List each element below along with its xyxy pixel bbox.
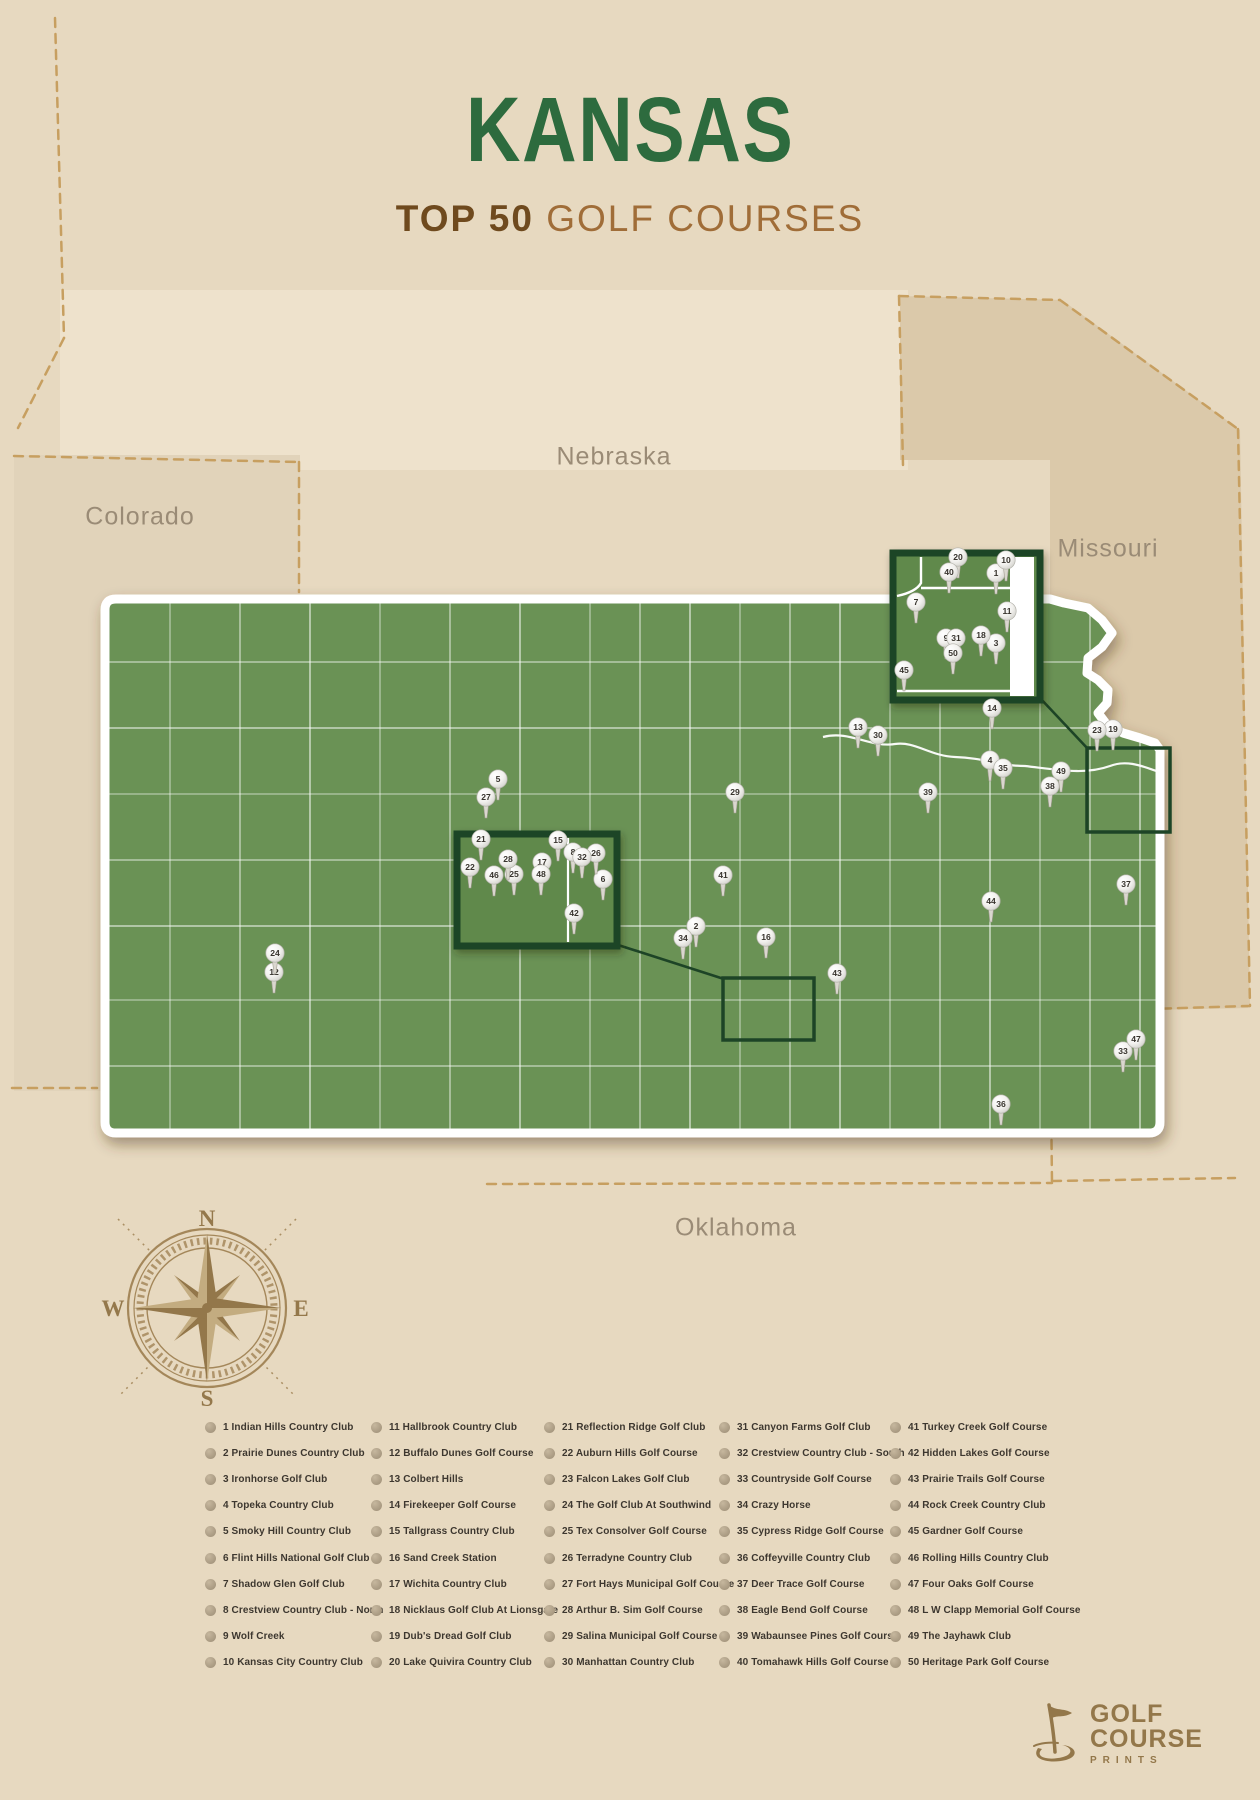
legend-item-label: 20 Lake Quivira Country Club <box>389 1657 532 1668</box>
svg-text:45: 45 <box>899 665 909 675</box>
golf-ball-bullet-icon <box>205 1526 216 1537</box>
legend-item: 26 Terradyne Country Club <box>544 1545 714 1571</box>
legend-column-1: 1 Indian Hills Country Club2 Prairie Dun… <box>205 1414 375 1676</box>
legend-item-label: 12 Buffalo Dunes Golf Course <box>389 1448 533 1459</box>
legend-item-label: 33 Countryside Golf Course <box>737 1474 872 1485</box>
legend-item-label: 16 Sand Creek Station <box>389 1553 497 1564</box>
compass-w-label: W <box>102 1296 125 1321</box>
logo-line-course: COURSE <box>1090 1727 1203 1752</box>
legend-item-label: 42 Hidden Lakes Golf Course <box>908 1448 1050 1459</box>
golf-ball-bullet-icon <box>371 1500 382 1511</box>
golf-ball-bullet-icon <box>205 1500 216 1511</box>
golf-ball-bullet-icon <box>371 1631 382 1642</box>
svg-text:43: 43 <box>832 968 842 978</box>
legend-column-5: 41 Turkey Creek Golf Course42 Hidden Lak… <box>890 1414 1060 1676</box>
legend-column-3: 21 Reflection Ridge Golf Club22 Auburn H… <box>544 1414 714 1676</box>
golf-ball-bullet-icon <box>205 1605 216 1616</box>
legend-item-label: 34 Crazy Horse <box>737 1500 811 1511</box>
legend-item-label: 2 Prairie Dunes Country Club <box>223 1448 365 1459</box>
compass-s-label: S <box>201 1386 214 1411</box>
svg-text:19: 19 <box>1108 724 1118 734</box>
legend-item-label: 18 Nicklaus Golf Club At Lionsgate <box>389 1605 558 1616</box>
svg-text:37: 37 <box>1121 879 1131 889</box>
legend-item-label: 29 Salina Municipal Golf Course <box>562 1631 717 1642</box>
legend-item-label: 25 Tex Consolver Golf Course <box>562 1526 707 1537</box>
legend-item-label: 1 Indian Hills Country Club <box>223 1422 353 1433</box>
svg-text:20: 20 <box>953 552 963 562</box>
svg-text:36: 36 <box>996 1099 1006 1109</box>
legend-item: 15 Tallgrass Country Club <box>371 1519 541 1545</box>
legend-item: 24 The Golf Club At Southwind <box>544 1493 714 1519</box>
golf-ball-bullet-icon <box>719 1579 730 1590</box>
legend-item: 27 Fort Hays Municipal Golf Course <box>544 1571 714 1597</box>
state-label-colorado: Colorado <box>85 503 194 532</box>
legend-item: 13 Colbert Hills <box>371 1466 541 1492</box>
svg-text:46: 46 <box>489 870 499 880</box>
legend-item-label: 49 The Jayhawk Club <box>908 1631 1011 1642</box>
legend-item: 19 Dub's Dread Golf Club <box>371 1624 541 1650</box>
state-label-nebraska: Nebraska <box>557 443 672 472</box>
golf-ball-bullet-icon <box>544 1474 555 1485</box>
golf-ball-bullet-icon <box>890 1631 901 1642</box>
golf-ball-bullet-icon <box>890 1422 901 1433</box>
golf-ball-bullet-icon <box>205 1422 216 1433</box>
golf-ball-bullet-icon <box>205 1657 216 1668</box>
legend-item-label: 43 Prairie Trails Golf Course <box>908 1474 1045 1485</box>
svg-text:38: 38 <box>1045 781 1055 791</box>
compass-e-label: E <box>293 1296 308 1321</box>
legend-item-label: 24 The Golf Club At Southwind <box>562 1500 711 1511</box>
legend-item-label: 14 Firekeeper Golf Course <box>389 1500 516 1511</box>
golf-ball-bullet-icon <box>719 1631 730 1642</box>
legend-item-label: 9 Wolf Creek <box>223 1631 285 1642</box>
golf-ball-bullet-icon <box>205 1474 216 1485</box>
legend-item-label: 5 Smoky Hill Country Club <box>223 1526 351 1537</box>
kansas-city-inset <box>893 553 1040 700</box>
golf-ball-bullet-icon <box>890 1474 901 1485</box>
golf-ball-bullet-icon <box>719 1605 730 1616</box>
legend-item: 1 Indian Hills Country Club <box>205 1414 375 1440</box>
golf-ball-bullet-icon <box>371 1422 382 1433</box>
legend-item: 8 Crestview Country Club - North <box>205 1597 375 1623</box>
golf-ball-bullet-icon <box>890 1500 901 1511</box>
legend-item-label: 23 Falcon Lakes Golf Club <box>562 1474 690 1485</box>
legend-item-label: 50 Heritage Park Golf Course <box>908 1657 1049 1668</box>
legend-item: 50 Heritage Park Golf Course <box>890 1650 1060 1676</box>
legend-item: 39 Wabaunsee Pines Golf Course <box>719 1624 889 1650</box>
legend-item-label: 4 Topeka Country Club <box>223 1500 334 1511</box>
legend-item-label: 38 Eagle Bend Golf Course <box>737 1605 868 1616</box>
title-kansas: KANSAS <box>466 84 794 176</box>
golf-ball-bullet-icon <box>371 1526 382 1537</box>
golf-flag-icon <box>1028 1702 1086 1768</box>
legend-item-label: 36 Coffeyville Country Club <box>737 1553 870 1564</box>
golf-ball-bullet-icon <box>890 1553 901 1564</box>
legend-item: 22 Auburn Hills Golf Course <box>544 1440 714 1466</box>
golf-ball-bullet-icon <box>544 1500 555 1511</box>
golf-ball-bullet-icon <box>890 1579 901 1590</box>
svg-text:39: 39 <box>923 787 933 797</box>
golf-ball-bullet-icon <box>371 1474 382 1485</box>
legend-item-label: 40 Tomahawk Hills Golf Course <box>737 1657 889 1668</box>
golf-ball-bullet-icon <box>719 1474 730 1485</box>
legend-item-label: 30 Manhattan Country Club <box>562 1657 695 1668</box>
svg-text:50: 50 <box>948 648 958 658</box>
state-label-oklahoma: Oklahoma <box>675 1214 797 1243</box>
legend-item: 35 Cypress Ridge Golf Course <box>719 1519 889 1545</box>
legend-item: 18 Nicklaus Golf Club At Lionsgate <box>371 1597 541 1623</box>
legend-item: 34 Crazy Horse <box>719 1493 889 1519</box>
legend-item: 45 Gardner Golf Course <box>890 1519 1060 1545</box>
golf-ball-bullet-icon <box>544 1553 555 1564</box>
svg-text:4: 4 <box>988 755 993 765</box>
svg-text:6: 6 <box>601 874 606 884</box>
legend-item: 44 Rock Creek Country Club <box>890 1493 1060 1519</box>
compass-n-label: N <box>199 1206 216 1231</box>
svg-text:15: 15 <box>553 835 563 845</box>
legend-item: 47 Four Oaks Golf Course <box>890 1571 1060 1597</box>
svg-text:40: 40 <box>944 567 954 577</box>
svg-text:47: 47 <box>1131 1034 1141 1044</box>
legend-item: 33 Countryside Golf Course <box>719 1466 889 1492</box>
legend-item-label: 6 Flint Hills National Golf Club <box>223 1553 370 1564</box>
svg-text:13: 13 <box>853 722 863 732</box>
legend-item: 32 Crestview Country Club - South <box>719 1440 889 1466</box>
golf-ball-bullet-icon <box>371 1448 382 1459</box>
svg-text:49: 49 <box>1056 766 1066 776</box>
svg-text:29: 29 <box>730 787 740 797</box>
golf-ball-bullet-icon <box>371 1657 382 1668</box>
legend-item: 43 Prairie Trails Golf Course <box>890 1466 1060 1492</box>
legend-item: 36 Coffeyville Country Club <box>719 1545 889 1571</box>
legend-item: 17 Wichita Country Club <box>371 1571 541 1597</box>
legend-item-label: 37 Deer Trace Golf Course <box>737 1579 865 1590</box>
svg-text:41: 41 <box>718 870 728 880</box>
legend-item-label: 21 Reflection Ridge Golf Club <box>562 1422 705 1433</box>
svg-text:24: 24 <box>270 948 280 958</box>
legend-item: 20 Lake Quivira Country Club <box>371 1650 541 1676</box>
legend-item: 2 Prairie Dunes Country Club <box>205 1440 375 1466</box>
page-subtitle: TOP 50 GOLF COURSES <box>0 200 1260 237</box>
svg-text:35: 35 <box>998 763 1008 773</box>
svg-text:5: 5 <box>496 774 501 784</box>
golf-ball-bullet-icon <box>371 1579 382 1590</box>
legend-item: 40 Tomahawk Hills Golf Course <box>719 1650 889 1676</box>
golf-ball-bullet-icon <box>371 1553 382 1564</box>
golf-ball-bullet-icon <box>205 1579 216 1590</box>
legend-item: 7 Shadow Glen Golf Club <box>205 1571 375 1597</box>
golf-ball-bullet-icon <box>890 1526 901 1537</box>
legend-column-4: 31 Canyon Farms Golf Club32 Crestview Co… <box>719 1414 889 1676</box>
golf-ball-bullet-icon <box>719 1553 730 1564</box>
subtitle-golf-courses: GOLF COURSES <box>534 198 864 239</box>
legend-item-label: 41 Turkey Creek Golf Course <box>908 1422 1047 1433</box>
legend-item-label: 46 Rolling Hills Country Club <box>908 1553 1049 1564</box>
svg-text:10: 10 <box>1001 555 1011 565</box>
svg-text:34: 34 <box>678 933 688 943</box>
svg-text:11: 11 <box>1002 606 1011 616</box>
legend-item: 29 Salina Municipal Golf Course <box>544 1624 714 1650</box>
legend-item: 4 Topeka Country Club <box>205 1493 375 1519</box>
legend-item: 21 Reflection Ridge Golf Club <box>544 1414 714 1440</box>
golf-ball-bullet-icon <box>205 1553 216 1564</box>
legend-item-label: 28 Arthur B. Sim Golf Course <box>562 1605 703 1616</box>
legend-item: 9 Wolf Creek <box>205 1624 375 1650</box>
golf-ball-bullet-icon <box>544 1605 555 1616</box>
legend-item: 14 Firekeeper Golf Course <box>371 1493 541 1519</box>
legend-item-label: 44 Rock Creek Country Club <box>908 1500 1046 1511</box>
brand-logo: GOLF COURSE PRINTS <box>1028 1702 1238 1768</box>
legend-item-label: 39 Wabaunsee Pines Golf Course <box>737 1631 899 1642</box>
svg-text:22: 22 <box>465 862 475 872</box>
legend-item: 11 Hallbrook Country Club <box>371 1414 541 1440</box>
legend-item: 25 Tex Consolver Golf Course <box>544 1519 714 1545</box>
legend-item-label: 27 Fort Hays Municipal Golf Course <box>562 1579 734 1590</box>
legend-item-label: 19 Dub's Dread Golf Club <box>389 1631 512 1642</box>
legend-item-label: 8 Crestview Country Club - North <box>223 1605 383 1616</box>
legend-item-label: 31 Canyon Farms Golf Club <box>737 1422 871 1433</box>
golf-ball-bullet-icon <box>719 1526 730 1537</box>
legend-item: 38 Eagle Bend Golf Course <box>719 1597 889 1623</box>
legend-item: 30 Manhattan Country Club <box>544 1650 714 1676</box>
legend-item-label: 45 Gardner Golf Course <box>908 1526 1023 1537</box>
svg-text:14: 14 <box>987 703 997 713</box>
legend-item-label: 22 Auburn Hills Golf Course <box>562 1448 698 1459</box>
legend-item: 6 Flint Hills National Golf Club <box>205 1545 375 1571</box>
compass-rose: N E S W <box>102 1206 309 1411</box>
legend-column-2: 11 Hallbrook Country Club12 Buffalo Dune… <box>371 1414 541 1676</box>
golf-ball-bullet-icon <box>544 1526 555 1537</box>
golf-ball-bullet-icon <box>544 1579 555 1590</box>
legend-item: 49 The Jayhawk Club <box>890 1624 1060 1650</box>
svg-text:27: 27 <box>481 792 491 802</box>
svg-text:21: 21 <box>476 834 486 844</box>
svg-text:30: 30 <box>873 730 883 740</box>
legend-item: 16 Sand Creek Station <box>371 1545 541 1571</box>
legend-item: 46 Rolling Hills Country Club <box>890 1545 1060 1571</box>
legend-item: 3 Ironhorse Golf Club <box>205 1466 375 1492</box>
subtitle-top50: TOP 50 <box>396 198 534 239</box>
legend-item-label: 3 Ironhorse Golf Club <box>223 1474 327 1485</box>
golf-ball-bullet-icon <box>890 1657 901 1668</box>
legend-item-label: 10 Kansas City Country Club <box>223 1657 363 1668</box>
legend-item-label: 7 Shadow Glen Golf Club <box>223 1579 345 1590</box>
svg-text:32: 32 <box>577 852 587 862</box>
legend-item: 48 L W Clapp Memorial Golf Course <box>890 1597 1060 1623</box>
golf-ball-bullet-icon <box>890 1448 901 1459</box>
svg-text:44: 44 <box>986 896 996 906</box>
legend-item: 23 Falcon Lakes Golf Club <box>544 1466 714 1492</box>
golf-ball-bullet-icon <box>719 1448 730 1459</box>
legend-item-label: 13 Colbert Hills <box>389 1474 463 1485</box>
legend-item-label: 48 L W Clapp Memorial Golf Course <box>908 1605 1081 1616</box>
golf-ball-bullet-icon <box>719 1657 730 1668</box>
golf-ball-bullet-icon <box>371 1605 382 1616</box>
svg-text:28: 28 <box>503 854 513 864</box>
golf-ball-bullet-icon <box>544 1422 555 1433</box>
svg-text:3: 3 <box>994 638 999 648</box>
svg-text:7: 7 <box>914 597 919 607</box>
logo-line-prints: PRINTS <box>1090 1756 1203 1766</box>
svg-text:18: 18 <box>976 630 986 640</box>
svg-text:26: 26 <box>591 848 601 858</box>
svg-text:25: 25 <box>509 869 519 879</box>
legend-item: 31 Canyon Farms Golf Club <box>719 1414 889 1440</box>
legend-item: 5 Smoky Hill Country Club <box>205 1519 375 1545</box>
legend-item: 28 Arthur B. Sim Golf Course <box>544 1597 714 1623</box>
logo-line-golf: GOLF <box>1090 1702 1203 1727</box>
legend-item: 10 Kansas City Country Club <box>205 1650 375 1676</box>
golf-ball-bullet-icon <box>890 1605 901 1616</box>
legend-item: 37 Deer Trace Golf Course <box>719 1571 889 1597</box>
legend-item-label: 35 Cypress Ridge Golf Course <box>737 1526 884 1537</box>
golf-ball-bullet-icon <box>544 1448 555 1459</box>
svg-text:42: 42 <box>569 908 579 918</box>
legend-item-label: 17 Wichita Country Club <box>389 1579 507 1590</box>
legend-item: 42 Hidden Lakes Golf Course <box>890 1440 1060 1466</box>
legend-item: 12 Buffalo Dunes Golf Course <box>371 1440 541 1466</box>
state-label-missouri: Missouri <box>1057 535 1158 564</box>
legend-item: 41 Turkey Creek Golf Course <box>890 1414 1060 1440</box>
svg-text:1: 1 <box>994 568 999 578</box>
poster: 1234567891011121314151617181920212223242… <box>0 0 1260 1800</box>
svg-text:48: 48 <box>536 869 546 879</box>
svg-text:2: 2 <box>694 921 699 931</box>
golf-ball-bullet-icon <box>719 1422 730 1433</box>
golf-ball-bullet-icon <box>544 1631 555 1642</box>
golf-ball-bullet-icon <box>719 1500 730 1511</box>
legend-item-label: 11 Hallbrook Country Club <box>389 1422 517 1433</box>
golf-ball-bullet-icon <box>544 1657 555 1668</box>
svg-text:31: 31 <box>951 633 961 643</box>
golf-ball-bullet-icon <box>205 1448 216 1459</box>
svg-text:16: 16 <box>761 932 771 942</box>
legend-item-label: 26 Terradyne Country Club <box>562 1553 692 1564</box>
legend-item-label: 15 Tallgrass Country Club <box>389 1526 515 1537</box>
legend-item-label: 32 Crestview Country Club - South <box>737 1448 905 1459</box>
svg-text:33: 33 <box>1118 1046 1128 1056</box>
svg-text:23: 23 <box>1092 725 1102 735</box>
legend-item-label: 47 Four Oaks Golf Course <box>908 1579 1034 1590</box>
page-title: KANSAS <box>0 84 1260 176</box>
golf-ball-bullet-icon <box>205 1631 216 1642</box>
